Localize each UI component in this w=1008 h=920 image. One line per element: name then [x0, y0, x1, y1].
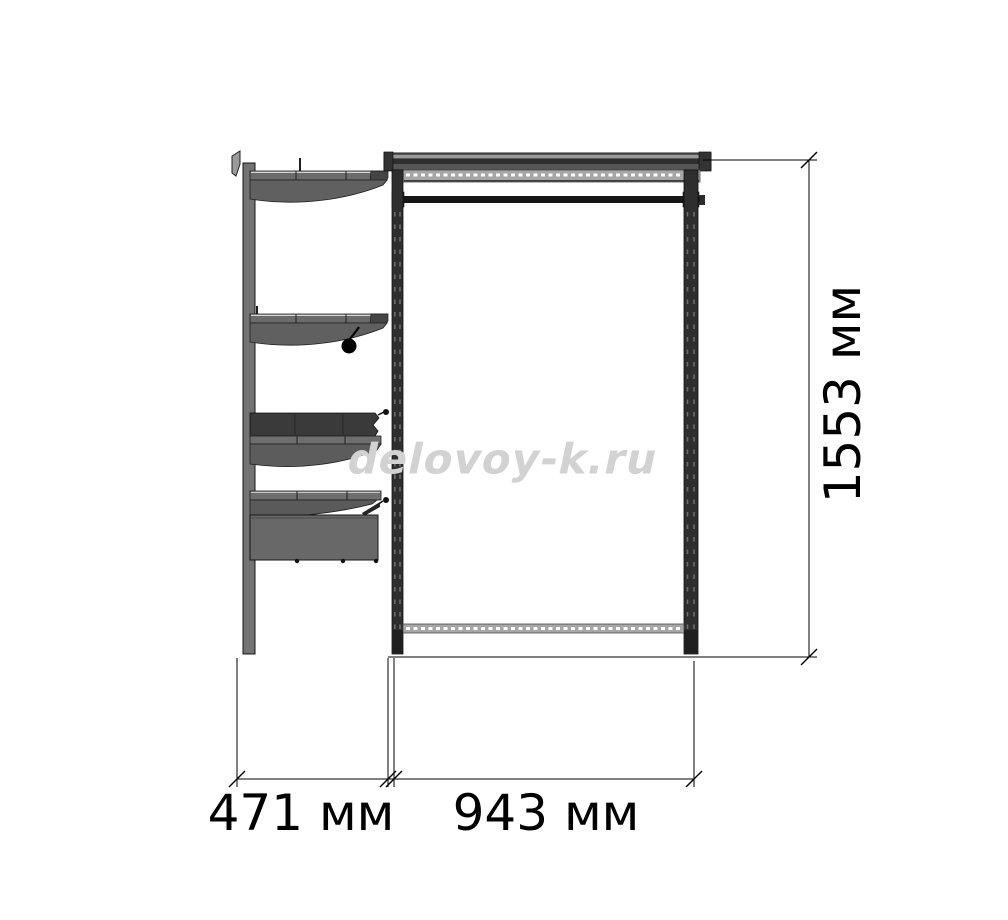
top-bar	[384, 152, 711, 171]
rod-body	[401, 196, 700, 203]
shelf-bracket	[250, 323, 387, 345]
front-frame-group	[384, 152, 711, 654]
basket-body	[250, 515, 378, 560]
bottom-rail	[392, 624, 698, 654]
post-body	[392, 170, 403, 654]
top-bar-right-cap	[699, 152, 711, 171]
basket-foot	[295, 559, 299, 563]
post-foot-right	[684, 630, 698, 654]
post-right	[684, 170, 698, 654]
mount-pin-stem	[378, 412, 384, 415]
post-foot-left	[392, 630, 403, 654]
shelf-middle	[250, 306, 388, 354]
shelf-bracket	[250, 500, 377, 516]
top-bar-highlight	[386, 155, 709, 158]
hanger-knob	[342, 339, 357, 354]
dimension-label-height: 1553 мм	[818, 285, 868, 504]
basket-unit	[250, 491, 389, 563]
shelf-bracket	[250, 180, 387, 202]
shelf-top	[250, 158, 388, 202]
post-left	[392, 170, 403, 654]
wall-rail	[243, 163, 255, 654]
basket-foot	[341, 559, 345, 563]
drawer-front	[250, 413, 379, 436]
product-dimension-diagram: delovoy-k.ru 1553 мм 471 мм 943 мм	[0, 0, 1008, 920]
watermark-text: delovoy-k.ru	[343, 435, 663, 484]
side-view-group	[232, 151, 389, 654]
post-body	[684, 170, 698, 654]
hanging-rod	[392, 192, 705, 207]
dimension-label-side-width: 471 мм	[208, 788, 395, 838]
wall-hook	[232, 151, 240, 176]
top-perforated-rail	[403, 170, 700, 182]
top-bar-left-cap	[384, 152, 393, 171]
basket-foot	[374, 559, 378, 563]
dimension-label-front-width: 943 мм	[453, 788, 640, 838]
mount-pin	[383, 497, 389, 503]
top-bar-shadow	[386, 159, 709, 164]
